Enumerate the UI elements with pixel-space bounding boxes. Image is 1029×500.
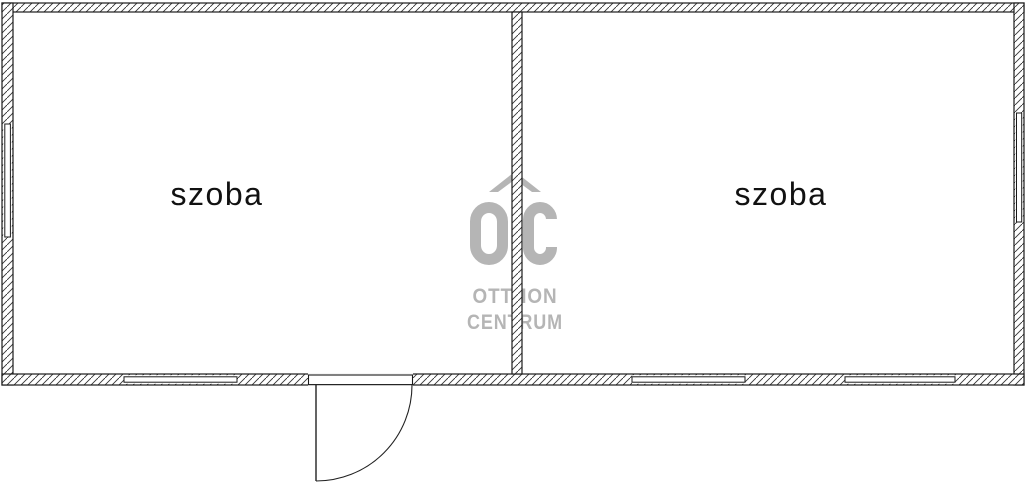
window-bottom-right-room-1: [632, 375, 745, 384]
floorplan-drawing: OTTHON CENTRUM: [0, 0, 1029, 500]
floorplan-canvas: OTTHON CENTRUM: [0, 0, 1029, 500]
room-label-left: szoba: [171, 176, 264, 212]
walls: [2, 3, 1024, 385]
door-swing-arc: [316, 385, 412, 481]
monogram-letter-o: [476, 208, 503, 260]
window-left-wall: [3, 124, 12, 237]
monogram-letter-c: [529, 208, 552, 260]
entrance-door: [308, 373, 413, 481]
window-bottom-left-room: [124, 375, 237, 384]
wall-top: [2, 3, 1024, 12]
window-bottom-right-room-2: [845, 375, 955, 384]
room-label-right: szoba: [735, 176, 828, 212]
door-threshold: [309, 375, 413, 385]
wall-partition: [512, 12, 522, 374]
window-right-wall: [1015, 113, 1023, 222]
